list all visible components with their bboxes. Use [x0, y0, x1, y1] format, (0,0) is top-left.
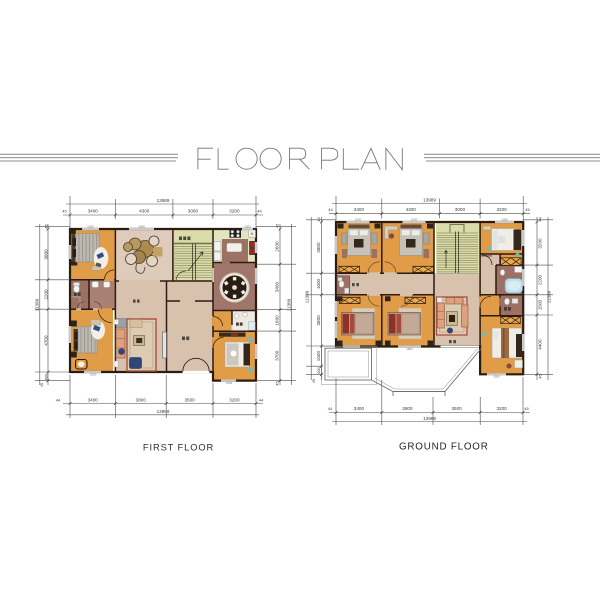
svg-text:1800: 1800 — [90, 373, 97, 377]
svg-text:3000: 3000 — [455, 207, 466, 212]
svg-text:4400: 4400 — [538, 339, 543, 350]
svg-text:13989: 13989 — [423, 198, 436, 203]
svg-text:45: 45 — [312, 379, 316, 383]
svg-text:3200: 3200 — [229, 398, 240, 403]
svg-text:44: 44 — [316, 217, 321, 222]
svg-text:4700: 4700 — [44, 335, 49, 346]
svg-text:4300: 4300 — [139, 209, 150, 214]
svg-text:3200: 3200 — [538, 238, 543, 249]
svg-text:44: 44 — [328, 406, 333, 411]
svg-text:3400: 3400 — [354, 406, 365, 411]
svg-text:1500: 1500 — [87, 224, 94, 228]
svg-text:45: 45 — [40, 383, 44, 387]
svg-text:3400: 3400 — [88, 398, 99, 403]
svg-text:3200: 3200 — [496, 406, 507, 411]
svg-text:3800: 3800 — [316, 315, 321, 326]
svg-text:45: 45 — [62, 209, 67, 214]
svg-text:1800: 1800 — [138, 224, 145, 228]
svg-text:45: 45 — [525, 207, 530, 212]
svg-text:3500: 3500 — [451, 406, 462, 411]
svg-text:13989: 13989 — [423, 416, 436, 421]
svg-text:45: 45 — [524, 406, 529, 411]
svg-text:44: 44 — [259, 398, 264, 403]
svg-text:1500: 1500 — [316, 351, 321, 362]
svg-text:3800: 3800 — [44, 249, 49, 260]
svg-text:1600: 1600 — [275, 315, 280, 326]
svg-text:600: 600 — [45, 374, 49, 380]
svg-text:3400: 3400 — [88, 209, 99, 214]
svg-text:3700: 3700 — [275, 350, 280, 361]
svg-text:11389: 11389 — [287, 298, 292, 311]
svg-text:1500: 1500 — [355, 217, 362, 221]
svg-text:45: 45 — [44, 224, 49, 229]
svg-text:3400: 3400 — [275, 281, 280, 292]
svg-text:FIRST FLOOR: FIRST FLOOR — [143, 443, 214, 453]
svg-text:600: 600 — [317, 367, 321, 373]
svg-text:1500: 1500 — [538, 299, 543, 310]
svg-text:3200: 3200 — [229, 209, 240, 214]
svg-text:1600: 1600 — [316, 278, 321, 289]
svg-text:3200: 3200 — [496, 207, 507, 212]
svg-text:1500: 1500 — [244, 224, 251, 228]
svg-text:GROUND FLOOR: GROUND FLOOR — [399, 442, 489, 453]
svg-text:44: 44 — [328, 207, 333, 212]
svg-text:44: 44 — [257, 209, 262, 214]
svg-text:45: 45 — [538, 374, 543, 379]
svg-text:1500: 1500 — [226, 381, 233, 385]
svg-text:3400: 3400 — [354, 207, 365, 212]
svg-text:13989: 13989 — [157, 198, 170, 203]
svg-text:3500: 3500 — [184, 398, 195, 403]
svg-text:1500: 1500 — [493, 374, 500, 378]
svg-text:11389: 11389 — [547, 290, 552, 303]
svg-text:2200: 2200 — [44, 289, 49, 300]
svg-text:2200: 2200 — [538, 274, 543, 285]
svg-text:13989: 13989 — [157, 409, 170, 414]
svg-text:2630: 2630 — [275, 241, 280, 252]
svg-text:1800: 1800 — [406, 347, 413, 351]
svg-text:11389: 11389 — [34, 298, 39, 311]
svg-text:3800: 3800 — [402, 406, 413, 411]
svg-text:11389: 11389 — [305, 290, 310, 303]
svg-text:45: 45 — [275, 223, 280, 228]
svg-text:4300: 4300 — [406, 207, 417, 212]
svg-text:44: 44 — [56, 398, 61, 403]
svg-text:3800: 3800 — [136, 398, 147, 403]
svg-text:1200: 1200 — [501, 217, 508, 221]
svg-text:3000: 3000 — [188, 209, 199, 214]
svg-text:3800: 3800 — [316, 242, 321, 253]
svg-text:1500: 1500 — [411, 217, 418, 221]
svg-text:45: 45 — [275, 381, 280, 386]
